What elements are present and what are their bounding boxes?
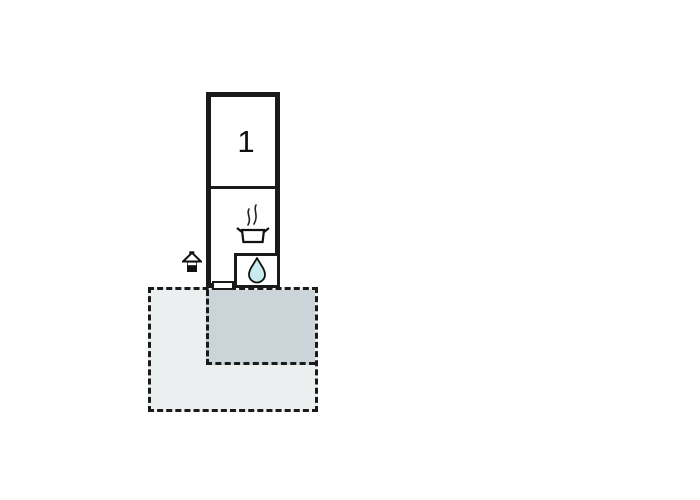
house-roof	[183, 253, 201, 262]
entrance-door	[212, 281, 234, 290]
floorplan-canvas: 1	[0, 0, 700, 500]
pot-body	[237, 228, 269, 242]
water-drop-icon	[247, 257, 267, 284]
cooking-pot-icon	[235, 202, 271, 246]
house-body-stripe	[188, 263, 196, 266]
room-1: 1	[211, 97, 275, 189]
steam-icon	[248, 205, 256, 225]
covered-patio-area	[206, 290, 315, 365]
house-entrance-icon	[182, 251, 202, 274]
bathroom-box	[234, 253, 280, 288]
water-drop-shape	[249, 258, 265, 283]
room-number-label: 1	[237, 126, 254, 157]
building-outline: 1	[206, 92, 280, 288]
